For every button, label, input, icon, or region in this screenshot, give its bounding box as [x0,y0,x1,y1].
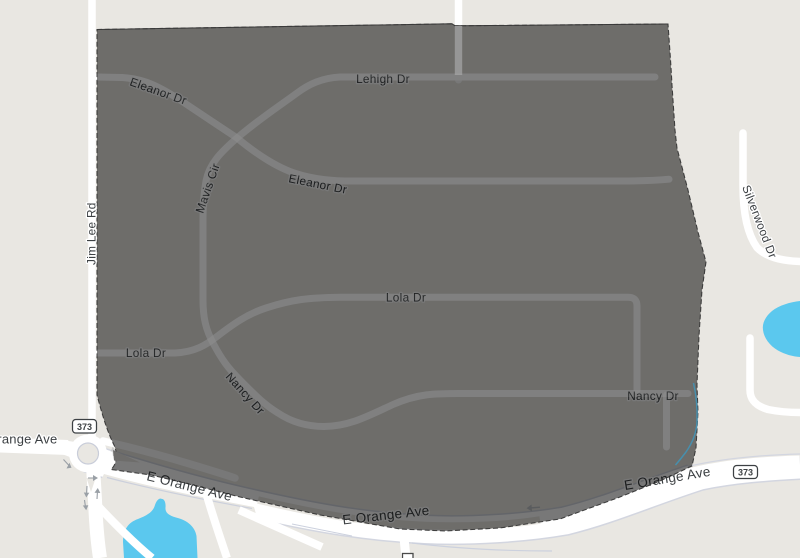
svg-text:Orange Ave: Orange Ave [0,432,57,447]
svg-text:Jim Lee Rd: Jim Lee Rd [85,202,99,265]
svg-text:373: 373 [738,468,753,478]
svg-text:373: 373 [77,422,92,432]
